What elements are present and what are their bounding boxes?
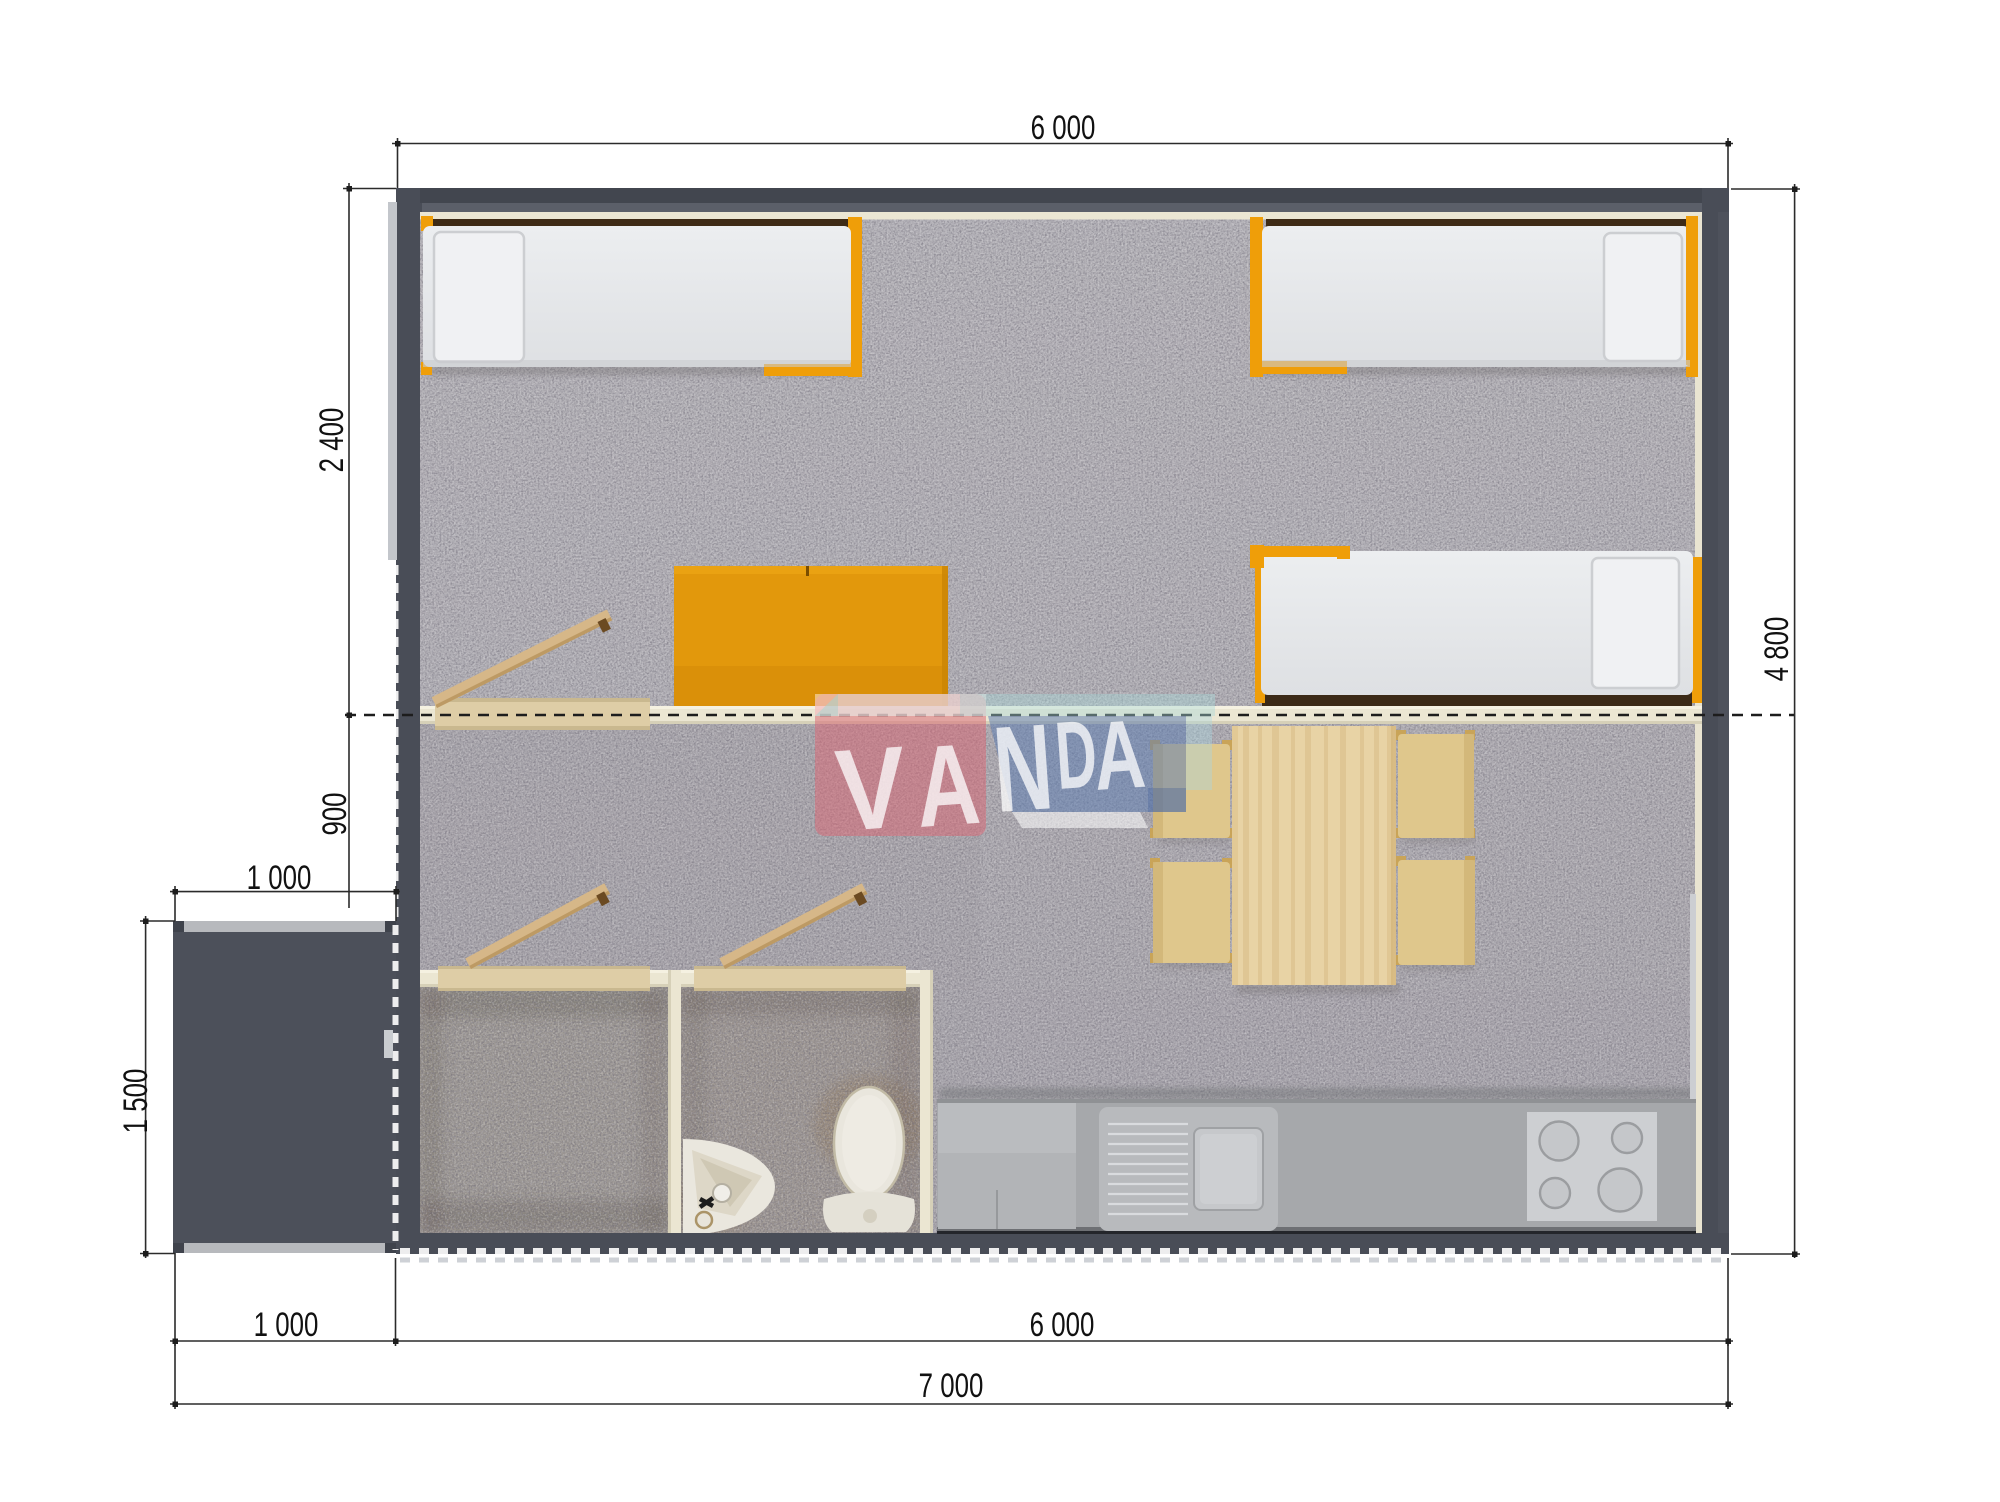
svg-text:2 400: 2 400 xyxy=(314,408,351,473)
svg-text:1 000: 1 000 xyxy=(254,1307,319,1344)
svg-text:N: N xyxy=(989,697,1057,838)
svg-text:V: V xyxy=(832,722,910,856)
svg-text:6 000: 6 000 xyxy=(1030,1307,1095,1344)
svg-text:900: 900 xyxy=(317,792,354,835)
svg-text:7 000: 7 000 xyxy=(919,1368,984,1405)
svg-text:A: A xyxy=(1090,699,1149,811)
svg-text:1 000: 1 000 xyxy=(247,860,312,897)
svg-text:4 800: 4 800 xyxy=(1759,617,1796,682)
svg-text:1 500: 1 500 xyxy=(118,1069,155,1134)
svg-text:A: A xyxy=(912,719,984,851)
svg-text:6 000: 6 000 xyxy=(1031,110,1096,147)
